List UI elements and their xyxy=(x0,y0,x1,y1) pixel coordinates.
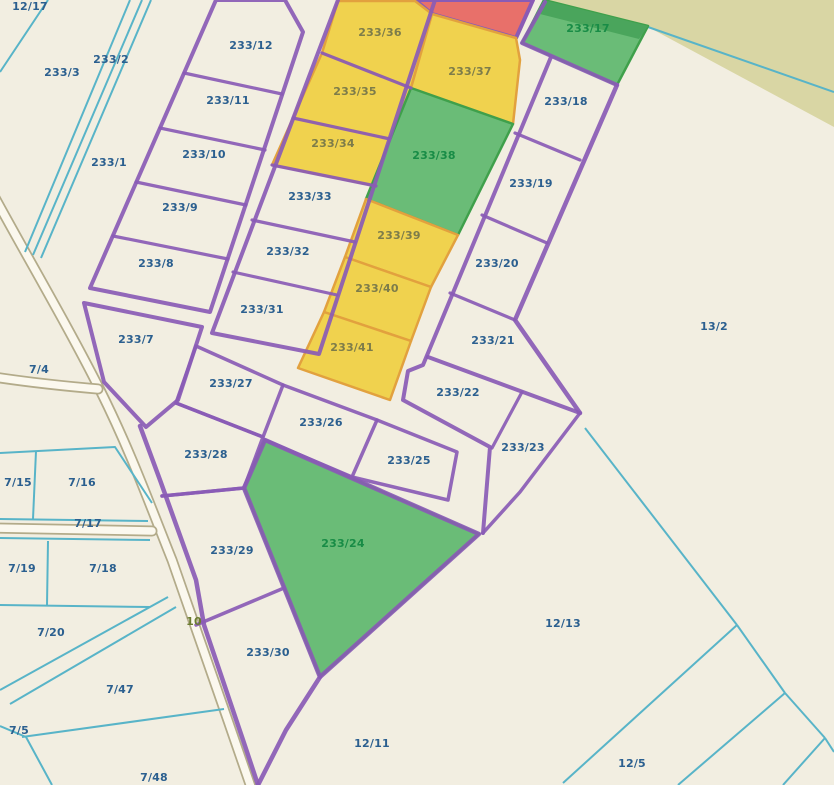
parcel-label-233-26[interactable]: 233/26 xyxy=(299,416,343,429)
parcel-label-12-17[interactable]: 12/17 xyxy=(12,0,48,13)
parcel-label-233-27[interactable]: 233/27 xyxy=(209,377,253,390)
cadastral-map[interactable]: 12/17233/3233/2233/1233/12233/11233/1023… xyxy=(0,0,834,785)
parcel-label-12-13[interactable]: 12/13 xyxy=(545,617,581,630)
parcel-label-7-18[interactable]: 7/18 xyxy=(89,562,117,575)
parcel-label-233-2[interactable]: 233/2 xyxy=(93,53,129,66)
parcel-label-233-3[interactable]: 233/3 xyxy=(44,66,80,79)
parcel-label-233-31[interactable]: 233/31 xyxy=(240,303,284,316)
parcel-label-233-8[interactable]: 233/8 xyxy=(138,257,174,270)
parcel-label-233-1[interactable]: 233/1 xyxy=(91,156,127,169)
map-canvas[interactable]: 12/17233/3233/2233/1233/12233/11233/1023… xyxy=(0,0,834,785)
parcel-label-233-34[interactable]: 233/34 xyxy=(311,137,355,150)
parcel-label-7-47[interactable]: 7/47 xyxy=(106,683,134,696)
parcel-label-233-40[interactable]: 233/40 xyxy=(355,282,399,295)
parcel-label-10[interactable]: 10 xyxy=(186,615,202,628)
parcel-label-233-22[interactable]: 233/22 xyxy=(436,386,480,399)
parcel-label-7-15[interactable]: 7/15 xyxy=(4,476,32,489)
parcel-label-7-5[interactable]: 7/5 xyxy=(9,724,29,737)
parcel-label-233-12[interactable]: 233/12 xyxy=(229,39,273,52)
parcel-label-7-17[interactable]: 7/17 xyxy=(74,517,102,530)
parcel-label-7-16[interactable]: 7/16 xyxy=(68,476,96,489)
parcel-label-233-21[interactable]: 233/21 xyxy=(471,334,515,347)
parcel-label-13-2[interactable]: 13/2 xyxy=(700,320,728,333)
parcel-label-233-32[interactable]: 233/32 xyxy=(266,245,310,258)
parcel-label-233-24[interactable]: 233/24 xyxy=(321,537,365,550)
parcel-label-12-5[interactable]: 12/5 xyxy=(618,757,646,770)
parcel-label-233-10[interactable]: 233/10 xyxy=(182,148,226,161)
parcel-label-233-38[interactable]: 233/38 xyxy=(412,149,456,162)
parcel-label-7-4[interactable]: 7/4 xyxy=(29,363,49,376)
parcel-label-233-11[interactable]: 233/11 xyxy=(206,94,250,107)
parcel-label-233-33[interactable]: 233/33 xyxy=(288,190,332,203)
parcel-label-233-23[interactable]: 233/23 xyxy=(501,441,545,454)
parcel-label-233-9[interactable]: 233/9 xyxy=(162,201,198,214)
parcel-label-233-35[interactable]: 233/35 xyxy=(333,85,377,98)
parcel-label-233-37[interactable]: 233/37 xyxy=(448,65,492,78)
parcel-label-233-28[interactable]: 233/28 xyxy=(184,448,228,461)
parcel-label-233-19[interactable]: 233/19 xyxy=(509,177,553,190)
parcel-label-233-39[interactable]: 233/39 xyxy=(377,229,421,242)
parcel-label-7-19[interactable]: 7/19 xyxy=(8,562,36,575)
parcel-label-233-41[interactable]: 233/41 xyxy=(330,341,374,354)
cyan-boundary-9 xyxy=(47,541,48,605)
parcel-label-233-29[interactable]: 233/29 xyxy=(210,544,254,557)
parcel-label-233-7[interactable]: 233/7 xyxy=(118,333,154,346)
parcel-label-233-20[interactable]: 233/20 xyxy=(475,257,519,270)
parcel-label-233-18[interactable]: 233/18 xyxy=(544,95,588,108)
parcel-label-233-25[interactable]: 233/25 xyxy=(387,454,431,467)
parcel-label-233-36[interactable]: 233/36 xyxy=(358,26,402,39)
parcel-label-12-11[interactable]: 12/11 xyxy=(354,737,390,750)
parcel-label-233-30[interactable]: 233/30 xyxy=(246,646,290,659)
parcel-label-7-48[interactable]: 7/48 xyxy=(140,771,168,784)
parcel-label-7-20[interactable]: 7/20 xyxy=(37,626,65,639)
parcel-label-233-17[interactable]: 233/17 xyxy=(566,22,610,35)
